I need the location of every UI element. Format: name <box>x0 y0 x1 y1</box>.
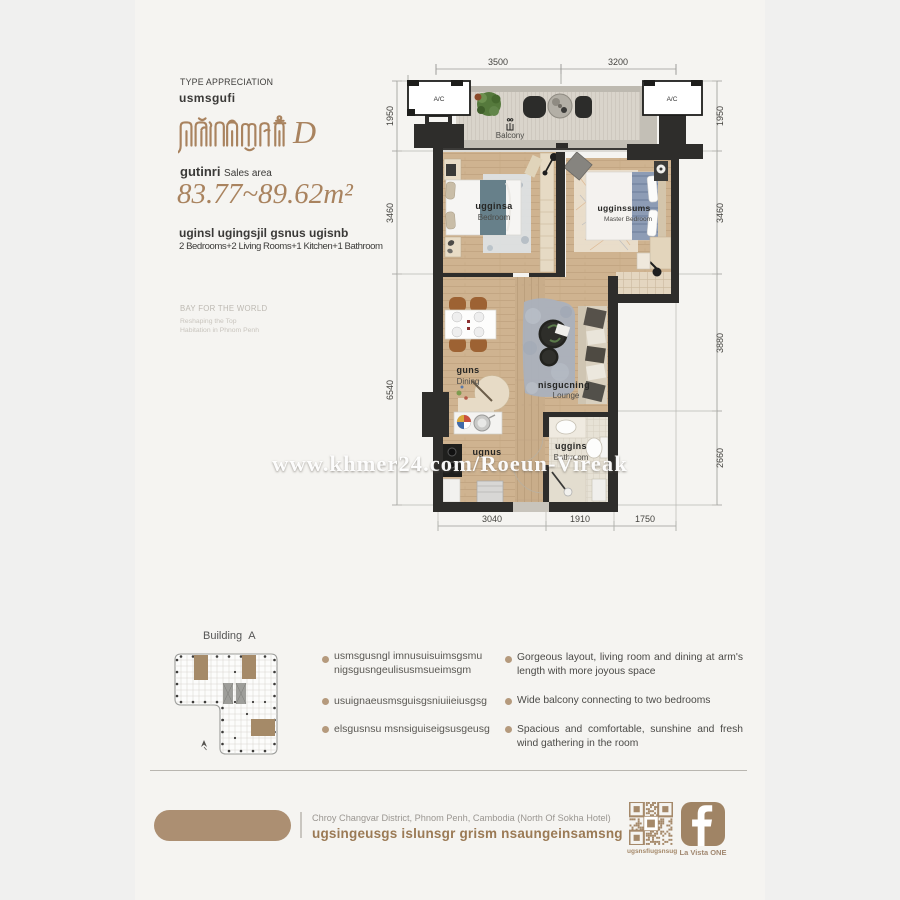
svg-text:Master Bedroom: Master Bedroom <box>604 216 652 223</box>
svg-text:A/C: A/C <box>667 96 678 103</box>
svg-text:1950: 1950 <box>385 106 395 126</box>
svg-text:uggins: uggins <box>555 441 587 451</box>
svg-text:3880: 3880 <box>715 333 725 353</box>
svg-text:3460: 3460 <box>385 203 395 223</box>
svg-text:D: D <box>292 114 316 150</box>
svg-text:1950: 1950 <box>715 106 725 126</box>
svg-text:6540: 6540 <box>385 380 395 400</box>
svg-text:Lounge: Lounge <box>553 391 580 400</box>
svg-text:Bedroom: Bedroom <box>478 213 511 222</box>
svg-text:3460: 3460 <box>715 203 725 223</box>
svg-text:3500: 3500 <box>488 57 508 67</box>
svg-text:Balcony: Balcony <box>496 131 524 140</box>
svg-text:1750: 1750 <box>635 514 655 524</box>
svg-text:ugginssums: ugginssums <box>597 203 650 213</box>
svg-text:ugginsa: ugginsa <box>475 201 513 211</box>
svg-text:A/C: A/C <box>434 96 445 103</box>
svg-text:nisgucning: nisgucning <box>538 380 590 390</box>
svg-text:1910: 1910 <box>570 514 590 524</box>
svg-text:3200: 3200 <box>608 57 628 67</box>
svg-text:Dining: Dining <box>457 377 480 386</box>
svg-text:guns: guns <box>456 365 479 375</box>
svg-text:3040: 3040 <box>482 514 502 524</box>
